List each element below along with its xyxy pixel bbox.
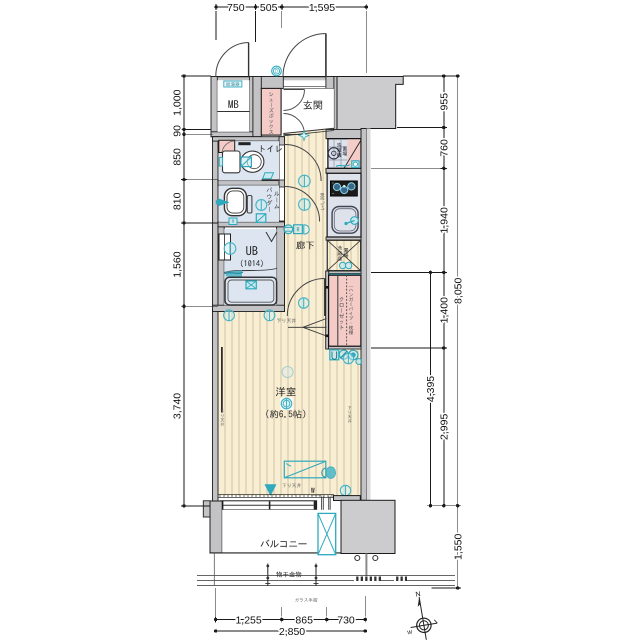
svg-text:865: 865 xyxy=(295,614,313,626)
svg-text:505: 505 xyxy=(260,2,278,14)
svg-text:850: 850 xyxy=(172,148,184,166)
svg-text:2,850: 2,850 xyxy=(279,626,305,638)
svg-text:750: 750 xyxy=(227,2,245,14)
svg-text:1,400: 1,400 xyxy=(438,297,450,323)
svg-text:1,595: 1,595 xyxy=(309,2,335,14)
svg-text:1,560: 1,560 xyxy=(172,251,184,277)
svg-text:760: 760 xyxy=(438,139,450,157)
svg-text:2,995: 2,995 xyxy=(438,414,450,440)
svg-text:4,395: 4,395 xyxy=(425,376,437,402)
svg-text:1,000: 1,000 xyxy=(172,89,184,115)
svg-text:1,940: 1,940 xyxy=(438,207,450,233)
svg-text:3,740: 3,740 xyxy=(172,393,184,419)
svg-text:1,550: 1,550 xyxy=(452,534,464,560)
svg-text:730: 730 xyxy=(337,614,355,626)
svg-text:1,255: 1,255 xyxy=(235,614,261,626)
svg-text:8,050: 8,050 xyxy=(452,278,464,304)
svg-text:955: 955 xyxy=(438,93,450,111)
svg-text:90: 90 xyxy=(172,125,184,137)
svg-text:810: 810 xyxy=(172,192,184,210)
